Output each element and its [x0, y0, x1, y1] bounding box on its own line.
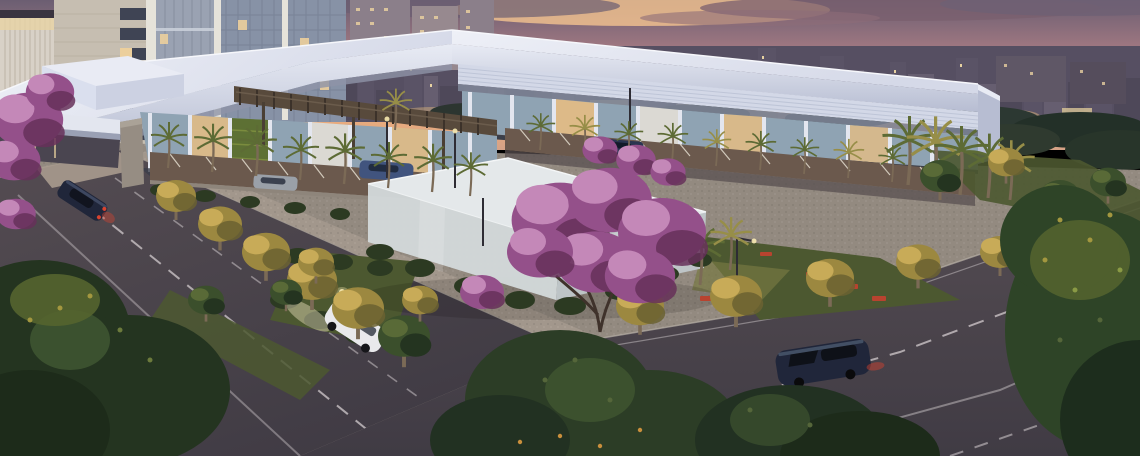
rendering-canvas — [0, 0, 1140, 456]
architectural-rendering — [0, 0, 1140, 456]
